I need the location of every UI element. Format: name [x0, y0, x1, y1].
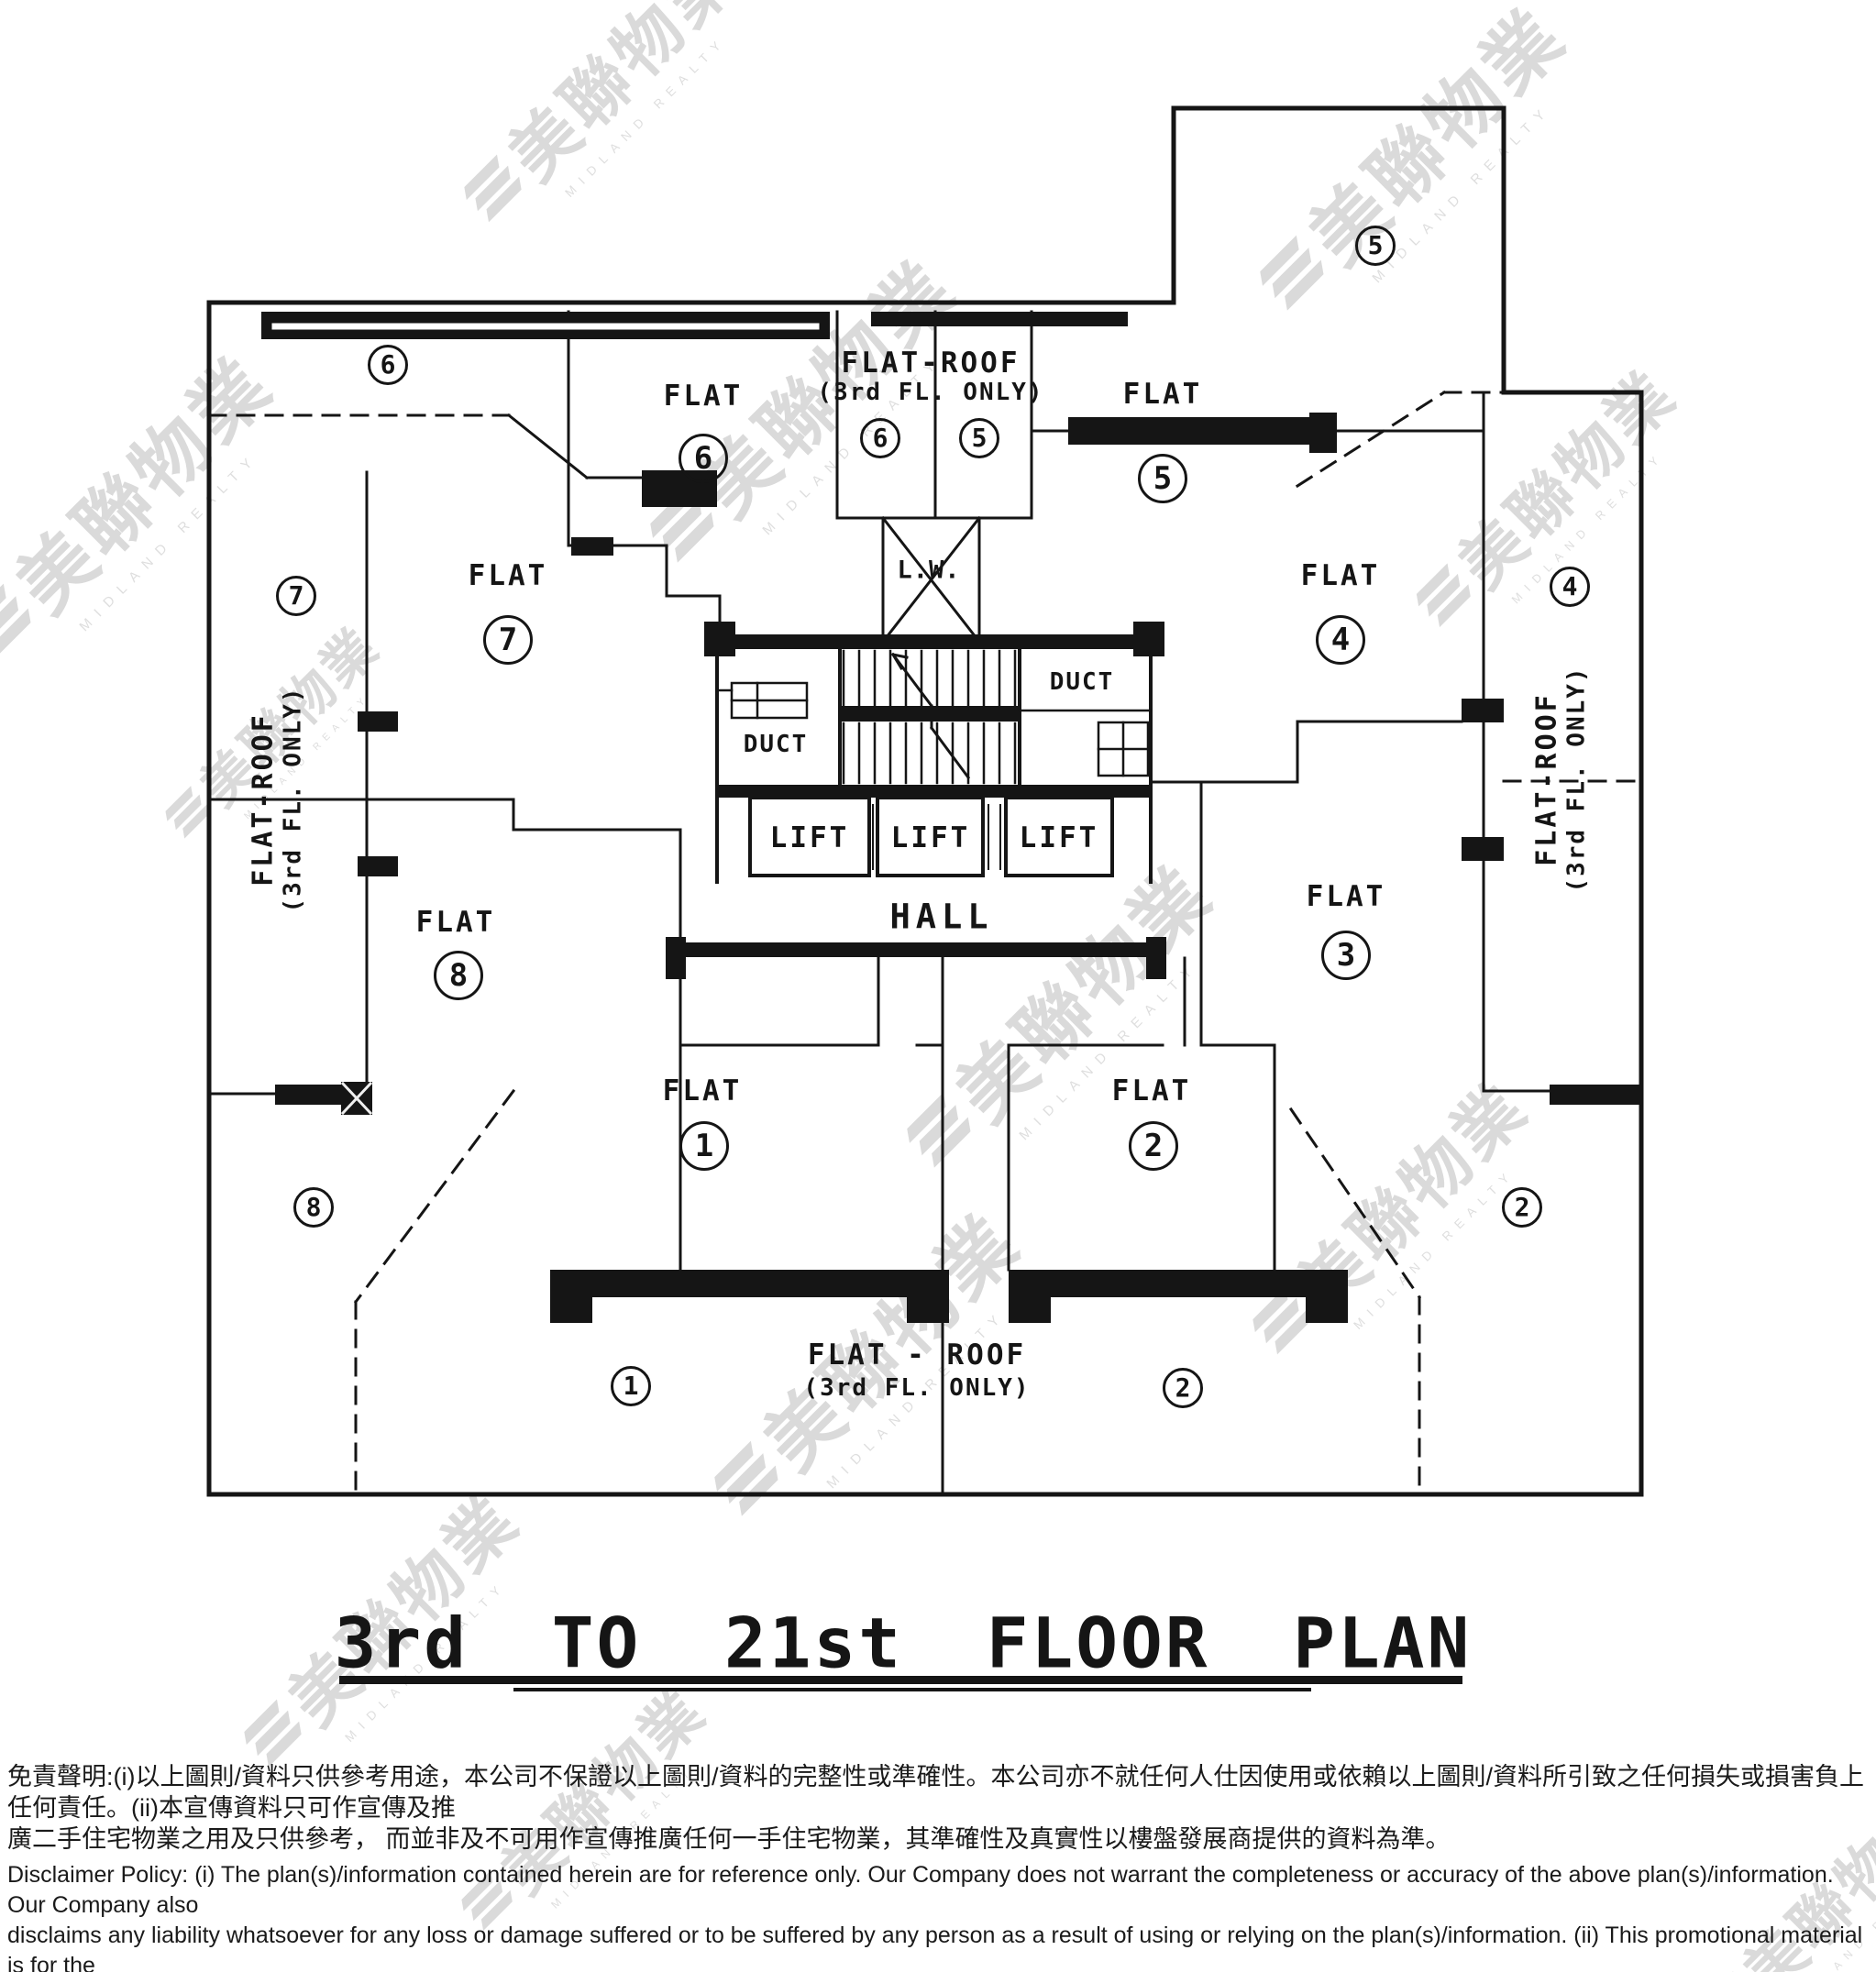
- flat-6-number: 6: [679, 434, 728, 483]
- flat-8-text: FLAT: [416, 906, 496, 939]
- duct-right-label: DUCT: [1050, 668, 1115, 696]
- flat-3-number: 3: [1321, 931, 1371, 980]
- roof-left-title: FLAT-ROOF: [248, 686, 280, 912]
- roof-marker-7: 7: [276, 576, 316, 616]
- roof-marker-8: 8: [293, 1187, 334, 1228]
- roof-top-number-6: 6: [860, 418, 900, 458]
- roof-bottom-number-2: 2: [1163, 1368, 1203, 1408]
- roof-bottom-title: FLAT - ROOF: [808, 1339, 1026, 1372]
- roof-left-label: FLAT-ROOF (3rd FL. ONLY): [248, 686, 307, 912]
- roof-right-subtitle: (3rd FL. ONLY): [1563, 666, 1591, 892]
- roof-top-number-5: 5: [959, 418, 999, 458]
- roof-right-title: FLAT-ROOF: [1531, 666, 1563, 892]
- flat-5-text: FLAT: [1123, 378, 1203, 411]
- disclaimer-en-line2: disclaims any liability whatsoever for a…: [7, 1921, 1870, 1972]
- roof-top-title: FLAT-ROOF: [842, 347, 1021, 380]
- roof-bottom-subtitle: (3rd FL. ONLY): [803, 1374, 1030, 1402]
- flat-2-number: 2: [1129, 1121, 1178, 1171]
- roof-bottom-number-1: 1: [611, 1366, 651, 1406]
- lift-1-label: LIFT: [770, 821, 850, 854]
- flat-4-text: FLAT: [1301, 559, 1381, 592]
- duct-left-label: DUCT: [744, 731, 809, 758]
- disclaimer-zh-line2: 廣二手住宅物業之用及只供參考， 而並非及不可用作宣傳推廣任何一手住宅物業，其準確…: [7, 1823, 1870, 1855]
- hall-label: HALL: [889, 898, 993, 937]
- flat-7-number: 7: [483, 615, 533, 665]
- flat-5-number: 5: [1138, 454, 1187, 503]
- flat-6-text: FLAT: [664, 380, 744, 413]
- lift-well-label: L.W.: [897, 556, 960, 585]
- flat-2-text: FLAT: [1112, 1074, 1192, 1107]
- disclaimer-en-line1: Disclaimer Policy: (i) The plan(s)/infor…: [7, 1860, 1870, 1921]
- disclaimer-block: 免責聲明:(i)以上圖則/資料只供參考用途，本公司不保證以上圖則/資料的完整性或…: [7, 1761, 1870, 1972]
- roof-left-subtitle: (3rd FL. ONLY): [280, 686, 307, 912]
- page-title: 3rd TO 21st FLOOR PLAN: [335, 1603, 1473, 1684]
- flat-4-number: 4: [1316, 615, 1365, 665]
- roof-marker-2: 2: [1502, 1187, 1542, 1228]
- flat-3-text: FLAT: [1307, 880, 1386, 913]
- lift-2-label: LIFT: [891, 821, 971, 854]
- floor-plan-page: 美聯物業 MIDLAND REALTY 美聯物業 MIDLAND REALTY …: [0, 0, 1876, 1972]
- roof-top-subtitle: (3rd FL. ONLY): [817, 379, 1043, 406]
- roof-marker-6: 6: [368, 345, 408, 385]
- roof-marker-4: 4: [1550, 567, 1590, 607]
- flat-8-number: 8: [434, 951, 483, 1000]
- flat-1-number: 1: [679, 1121, 729, 1171]
- flat-7-text: FLAT: [469, 559, 548, 592]
- roof-right-label: FLAT-ROOF (3rd FL. ONLY): [1531, 666, 1591, 892]
- lift-3-label: LIFT: [1020, 821, 1099, 854]
- flat-1-text: FLAT: [663, 1074, 743, 1107]
- roof-marker-5: 5: [1355, 226, 1396, 266]
- disclaimer-zh-line1: 免責聲明:(i)以上圖則/資料只供參考用途，本公司不保證以上圖則/資料的完整性或…: [7, 1761, 1870, 1823]
